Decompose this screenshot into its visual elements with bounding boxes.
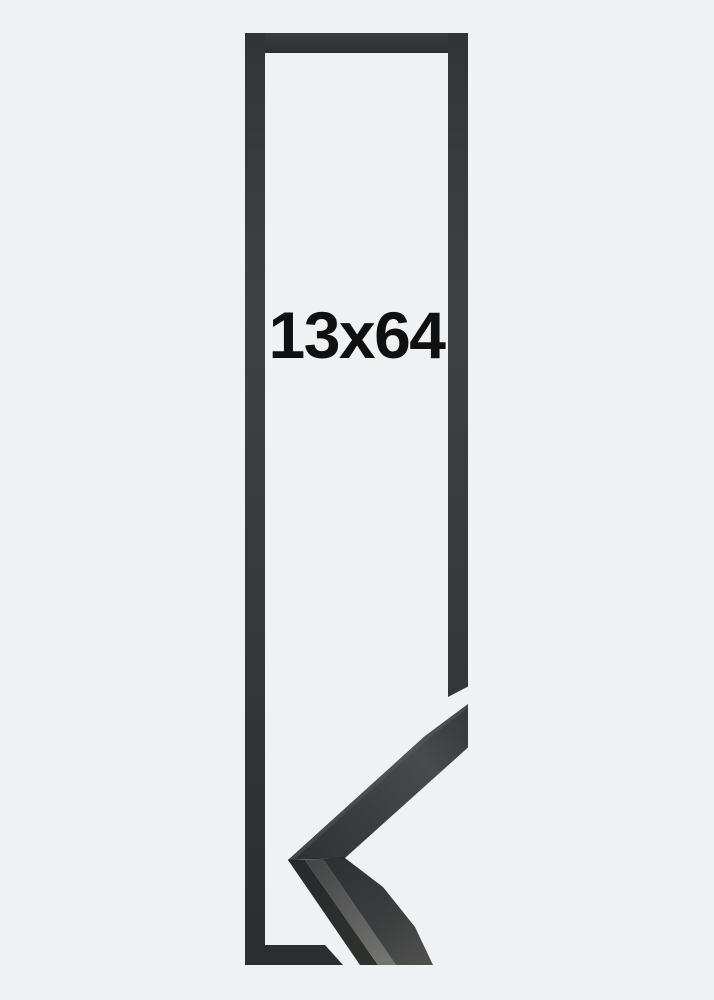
frame-corner-detail xyxy=(288,704,468,965)
frame-top-bar xyxy=(245,33,468,53)
corner-upper-arm-edge-highlight xyxy=(288,704,468,863)
frame-left-bar xyxy=(245,33,265,965)
product-image: 13x64 xyxy=(0,0,714,1000)
frame-bottom-bar xyxy=(245,945,343,965)
size-label: 13x64 xyxy=(245,302,468,368)
frame-illustration xyxy=(0,0,714,1000)
